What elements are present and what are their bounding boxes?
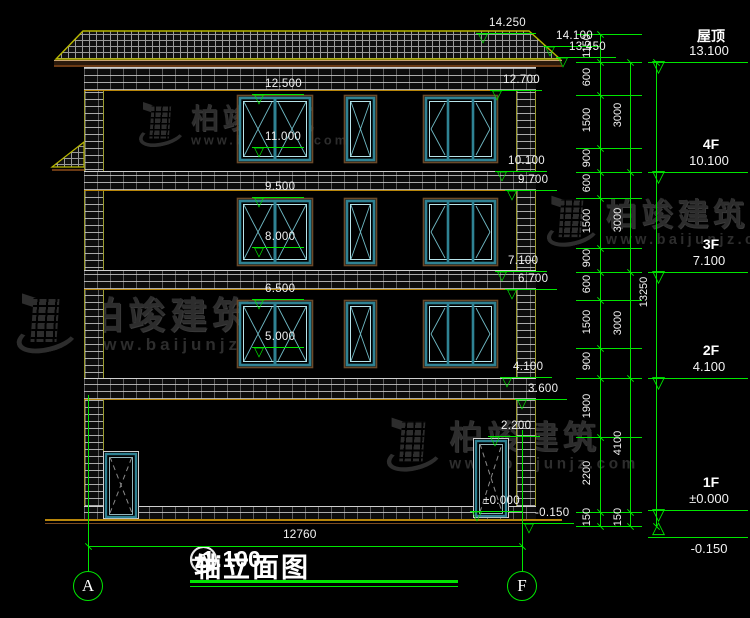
top-marker-2-triangle-icon: ▽ bbox=[558, 55, 568, 68]
left-marker-0-triangle-icon: ▽ bbox=[254, 92, 264, 105]
right-marker-7: 2.200 bbox=[501, 420, 531, 432]
right-marker-8-triangle-icon: ▽ bbox=[472, 509, 482, 522]
left-marker-2-triangle-icon: ▽ bbox=[254, 195, 264, 208]
right-marker-9-triangle-icon: ▽ bbox=[524, 521, 534, 534]
left-marker-5: 5.000 bbox=[265, 331, 295, 343]
overall-width-dimension: 12760 bbox=[283, 527, 316, 541]
annotation-layer: ▽14.250▽14.100▽13.450▽12.500▽11.000▽9.50… bbox=[0, 0, 750, 618]
right-marker-6: 3.600 bbox=[528, 383, 558, 395]
right-marker-3-triangle-icon: ▽ bbox=[497, 269, 507, 282]
axis-line-f bbox=[522, 430, 523, 571]
right-marker-5-triangle-icon: ▽ bbox=[502, 375, 512, 388]
right-marker-8: ±0.000 bbox=[483, 495, 520, 507]
left-marker-5-triangle-icon: ▽ bbox=[254, 345, 264, 358]
right-marker-7-triangle-icon: ▽ bbox=[490, 434, 500, 447]
left-marker-2: 9.500 bbox=[265, 181, 295, 193]
elevation-drawing-canvas: 柏竣建筑www.baijunjz.com柏竣建筑www.baijunjz.com… bbox=[0, 0, 750, 618]
bottom-dim-line bbox=[88, 546, 522, 547]
top-marker-2: 13.450 bbox=[569, 41, 606, 53]
left-marker-4-triangle-icon: ▽ bbox=[254, 297, 264, 310]
top-marker-1-triangle-icon: ▽ bbox=[545, 44, 555, 57]
left-marker-1-triangle-icon: ▽ bbox=[254, 145, 264, 158]
right-marker-1: 10.100 bbox=[508, 155, 545, 167]
left-marker-0: 12.500 bbox=[265, 78, 302, 90]
top-marker-0: 14.250 bbox=[489, 17, 526, 29]
right-marker-4: 6.700 bbox=[518, 273, 548, 285]
right-marker-6-triangle-icon: ▽ bbox=[517, 397, 527, 410]
right-marker-2-triangle-icon: ▽ bbox=[507, 188, 517, 201]
left-marker-1: 11.000 bbox=[265, 131, 301, 143]
right-marker-2: 9.700 bbox=[518, 174, 548, 186]
left-marker-3: 8.000 bbox=[265, 231, 295, 243]
right-marker-0: 12.700 bbox=[503, 74, 540, 86]
right-marker-1-triangle-icon: ▽ bbox=[497, 169, 507, 182]
left-marker-3-triangle-icon: ▽ bbox=[254, 245, 264, 258]
right-marker-9: -0.150 bbox=[535, 507, 569, 519]
right-marker-0-triangle-icon: ▽ bbox=[492, 88, 502, 101]
right-marker-4-triangle-icon: ▽ bbox=[507, 287, 517, 300]
top-marker-0-triangle-icon: ▽ bbox=[478, 31, 488, 44]
right-marker-3: 7.100 bbox=[508, 255, 538, 267]
left-marker-4: 6.500 bbox=[265, 283, 295, 295]
right-marker-5: 4.100 bbox=[513, 361, 543, 373]
